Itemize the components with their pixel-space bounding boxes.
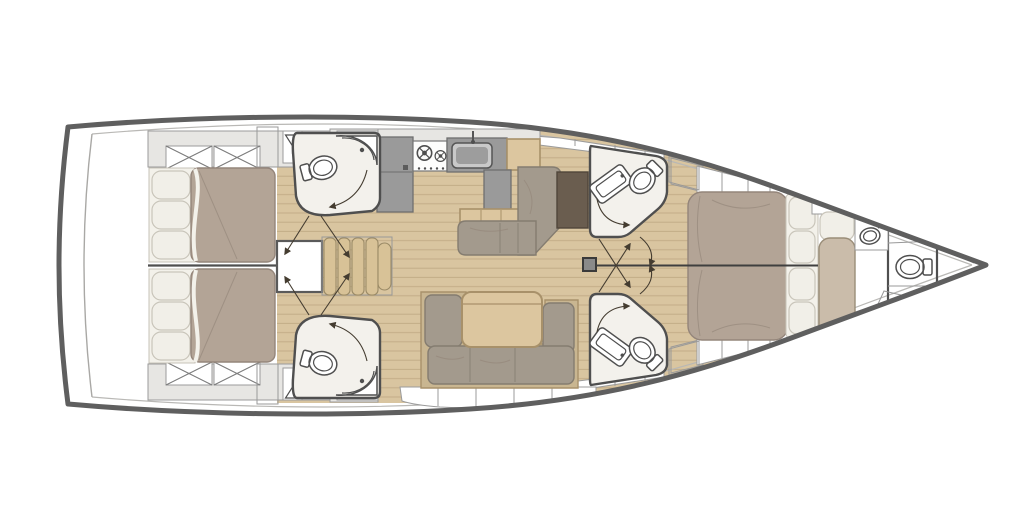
galley-peninsula [484, 170, 511, 210]
aft-head-starboard [293, 316, 380, 400]
interior [84, 124, 974, 408]
pillow [152, 201, 190, 229]
forward-head-toilet [896, 256, 932, 279]
pillow [152, 272, 190, 300]
pillow [152, 231, 190, 259]
double-bed-starboard [191, 269, 275, 362]
salon-chaise [425, 295, 462, 347]
pillow [152, 171, 190, 199]
shelf [460, 209, 523, 222]
pillow [789, 268, 815, 300]
pillow [789, 231, 815, 263]
pillow [152, 332, 190, 360]
aft-head-port [293, 131, 380, 215]
salon-table-wood [462, 292, 542, 347]
salon-lower [421, 292, 578, 388]
mast-step [583, 258, 596, 271]
salon-table-dark [557, 172, 588, 228]
salon-sofa-lower [428, 346, 574, 384]
aft-cabin-starboard [149, 269, 275, 363]
salon-sofa-upper-horizontal [458, 221, 536, 255]
aft-cabin-port [149, 168, 275, 262]
companionway [277, 237, 392, 295]
floor-plan-canvas [0, 0, 1024, 512]
galley-sideboard [507, 139, 540, 170]
yacht-floor-plan [0, 0, 1024, 512]
pillow [152, 302, 190, 330]
engine-hatch [277, 241, 322, 292]
galley-fridge [377, 137, 413, 212]
companionway-stairs [324, 238, 391, 295]
